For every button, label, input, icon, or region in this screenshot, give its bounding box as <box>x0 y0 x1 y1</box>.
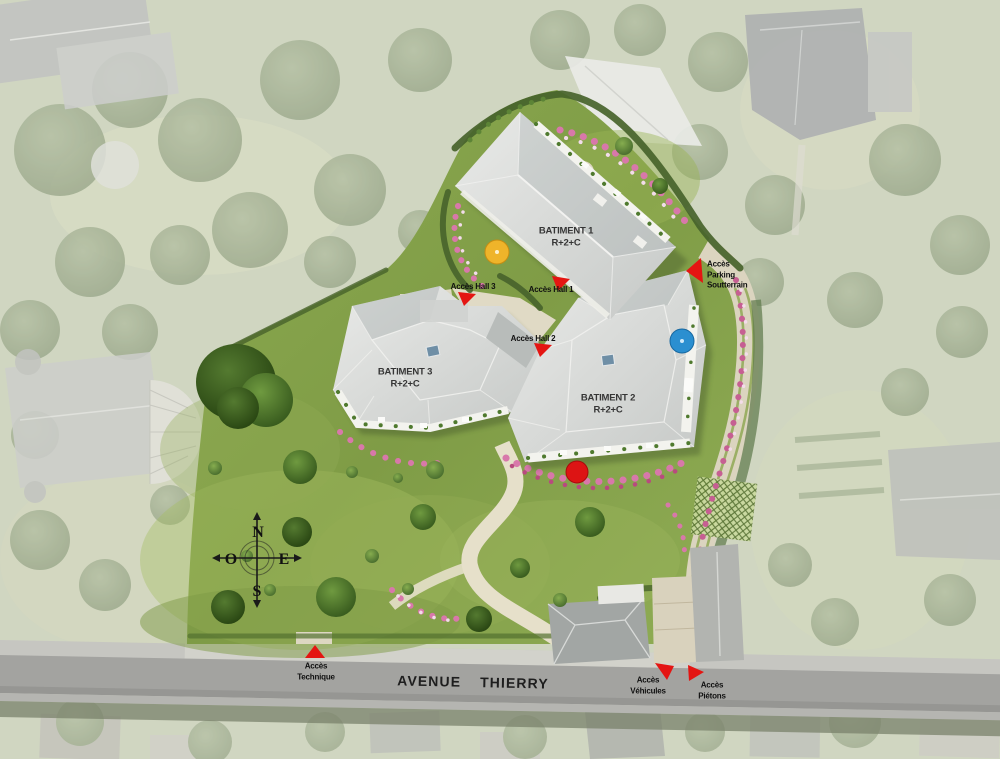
compass-e: E <box>279 551 290 568</box>
compass-n: N <box>252 524 264 541</box>
compass-s: S <box>253 583 262 600</box>
pergola-trellis <box>691 477 758 542</box>
site-plan-drawing: N S O E <box>0 0 1000 759</box>
site-plan: N S O E BATIMENT 1 R+2+C BATIMENT 2 R+2+… <box>0 0 1000 759</box>
compass-o: O <box>225 551 237 568</box>
red-parasol <box>566 461 588 483</box>
